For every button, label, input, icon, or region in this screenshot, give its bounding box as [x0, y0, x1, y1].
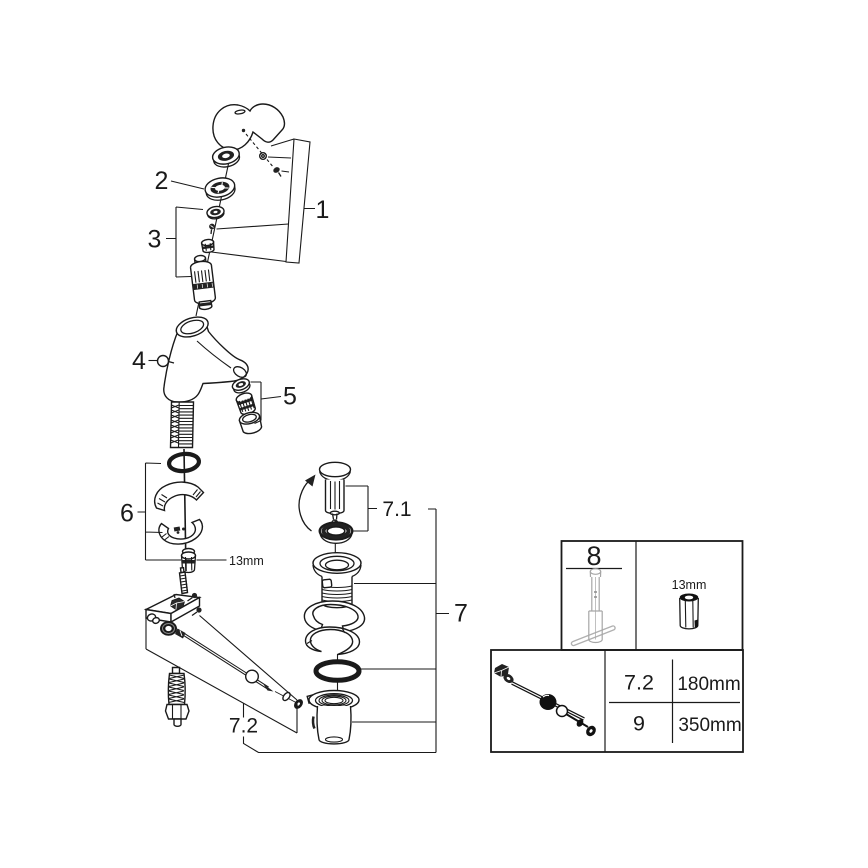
threaded-stud-drawing [180, 568, 189, 594]
callout-3-label: 3 [148, 226, 162, 254]
tool-socket-size: 13mm [672, 578, 707, 592]
cartridge-drawing [189, 254, 216, 310]
callout-4: 4 [132, 347, 157, 375]
rod-row2-length: 350mm [678, 715, 741, 736]
callout-4-label: 4 [132, 347, 146, 375]
drain-upper-body-drawing [313, 553, 361, 608]
handle-lever-drawing [213, 104, 284, 150]
mounting-ring-drawing [203, 175, 237, 203]
rod-row2-part: 9 [633, 712, 645, 736]
popup-rod-drawing [175, 629, 305, 711]
callout-5-label: 5 [283, 383, 297, 411]
callout-7: 7 [244, 509, 468, 753]
callout-7-1-label: 7.1 [382, 498, 411, 521]
rotation-arrow [299, 475, 315, 532]
plug-seat-ring-drawing [320, 523, 353, 544]
rod-kit-drawing [494, 664, 598, 738]
callout-wrench-size: 13mm [197, 554, 264, 568]
exploded-parts-diagram: 1 2 3 4 5 6 13mm 7.1 7 7.2 [0, 0, 868, 868]
callout-1-label: 1 [316, 196, 330, 224]
wrench-size-label: 13mm [229, 554, 264, 568]
aerator-set-drawing [231, 377, 264, 436]
callout-6-label: 6 [120, 500, 134, 528]
rod-row1-length: 180mm [677, 674, 740, 695]
popup-plug-drawing [320, 462, 351, 526]
tool-table: 8 13mm [562, 541, 743, 650]
rod-row1-part: 7.2 [624, 671, 654, 695]
callout-7-label: 7 [454, 600, 468, 628]
rod-table: 7.2 180mm 9 350mm [491, 650, 743, 752]
callout-2: 2 [155, 167, 204, 195]
callout-7-2-label: 7.2 [229, 715, 258, 738]
tool-part-number: 8 [586, 541, 601, 571]
clamp-bracket-drawing [159, 520, 203, 545]
cartridge-nut-drawing [201, 239, 214, 253]
handle-screw-hole [242, 129, 245, 132]
threaded-shank-drawing [171, 402, 194, 448]
flex-hose-drawing [166, 668, 190, 727]
callout-7-1: 7.1 [346, 486, 412, 531]
diagram-svg: 1 2 3 4 5 6 13mm 7.1 7 7.2 [0, 0, 868, 868]
drain-clamp-saddle-drawing [304, 601, 364, 655]
mounting-tool-drawing [574, 569, 614, 644]
socket-nut-drawing [680, 594, 699, 629]
callout-6: 6 [120, 463, 181, 560]
callout-2-label: 2 [155, 167, 169, 195]
stabilizer-plate-drawing [155, 482, 204, 510]
mounting-plate-drawing [146, 593, 202, 636]
drain-lower-body-drawing [307, 691, 359, 744]
drain-o-ring-drawing [316, 662, 359, 681]
cartridge-retainer-ring-drawing [206, 205, 225, 220]
